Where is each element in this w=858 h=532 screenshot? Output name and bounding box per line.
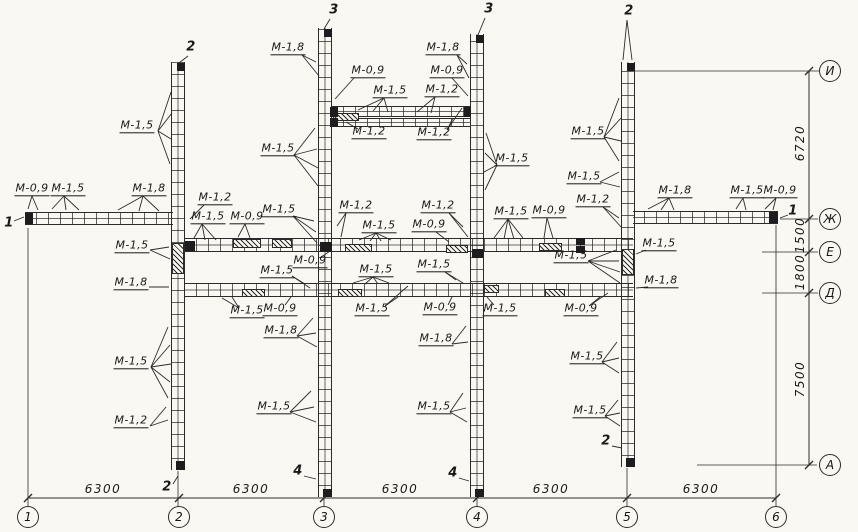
leader-line — [780, 215, 788, 218]
leader-line — [459, 478, 469, 481]
axis-marker-right: Ж — [819, 208, 841, 230]
leader-line — [245, 224, 250, 238]
solid-pier — [576, 238, 585, 245]
dimension-text: 6300 — [382, 482, 419, 496]
leader-line — [302, 55, 319, 76]
wall-segment — [470, 34, 484, 497]
hatched-wall-section — [345, 244, 372, 252]
dimension-text: 6300 — [533, 482, 570, 496]
leader-line — [547, 218, 553, 238]
leader-line — [452, 342, 468, 344]
wall-segment — [633, 211, 778, 224]
leader-line — [52, 196, 64, 209]
leader-line — [151, 345, 170, 367]
mortar-grade-label: M-1,5 — [359, 263, 394, 277]
leader-line — [304, 476, 316, 479]
solid-pier — [176, 461, 185, 470]
mortar-grade-label: M-1,5 — [262, 203, 297, 217]
mortar-grade-label: M-0,9 — [15, 182, 50, 196]
solid-pier — [185, 241, 195, 251]
section-mark-label: 1 — [4, 217, 13, 229]
solid-pier — [320, 242, 332, 252]
solid-pier — [627, 63, 635, 71]
mortar-grade-label: M-1,5 — [257, 400, 292, 414]
mortar-grade-label: M-1,8 — [114, 276, 149, 290]
leader-line — [194, 224, 202, 238]
leader-line — [450, 412, 467, 422]
leader-line — [158, 131, 170, 164]
leader-line — [669, 198, 674, 210]
dimension-text: 1800 — [793, 254, 807, 291]
leader-line — [600, 172, 619, 182]
axis-marker-bottom: 1 — [17, 506, 39, 528]
solid-pier — [25, 213, 33, 224]
mortar-grade-label: M-1,5 — [554, 249, 589, 263]
leader-line — [290, 412, 316, 422]
mortar-grade-label: M-1,5 — [230, 304, 265, 318]
mortar-grade-label: M-1,2 — [417, 126, 452, 140]
solid-pier — [330, 107, 338, 117]
leader-line — [32, 196, 38, 210]
leader-line — [14, 217, 24, 221]
leader-line — [158, 131, 171, 139]
mortar-grade-label: M-0,9 — [532, 204, 567, 218]
section-mark-label: 3 — [484, 3, 493, 15]
leader-line — [604, 98, 619, 137]
mortar-grade-label: M-1,8 — [644, 274, 679, 288]
leader-line — [173, 476, 178, 484]
solid-pier — [472, 249, 483, 258]
leader-line — [151, 367, 170, 382]
hatched-wall-section — [446, 245, 468, 253]
axis-marker-bottom: 5 — [616, 506, 638, 528]
hatched-wall-section — [545, 289, 565, 297]
mortar-grade-label: M-1,5 — [417, 258, 452, 272]
hatched-wall-section — [338, 289, 362, 297]
solid-pier — [330, 118, 338, 127]
leader-line — [452, 326, 466, 344]
solid-pier — [475, 489, 484, 497]
mortar-grade-label: M-1,5 — [362, 219, 397, 233]
dimension-text: 1500 — [793, 217, 807, 254]
solid-pier — [626, 458, 635, 467]
hatched-wall-section — [242, 289, 265, 297]
mortar-grade-label: M-1,5 — [571, 125, 606, 139]
solid-pier — [464, 107, 471, 117]
leader-line — [290, 407, 314, 412]
leader-line — [603, 207, 622, 228]
hatched-wall-section — [172, 243, 184, 274]
leader-line — [297, 318, 313, 336]
mortar-grade-label: M-1,5 — [417, 400, 452, 414]
hatched-wall-section — [484, 285, 499, 293]
leader-line — [290, 391, 311, 412]
mortar-grade-label: M-1,5 — [51, 182, 86, 196]
mortar-grade-label: M-1,5 — [191, 210, 226, 224]
axis-marker-bottom: 4 — [466, 506, 488, 528]
mortar-grade-label: M-1,2 — [352, 125, 387, 139]
leader-line — [151, 364, 171, 367]
mortar-grade-label: M-0,9 — [763, 184, 798, 198]
axis-marker-right: И — [819, 60, 841, 82]
leader-line — [297, 336, 317, 347]
leader-line — [736, 198, 743, 209]
mortar-grade-label: M-1,2 — [576, 193, 611, 207]
hatched-wall-section — [272, 239, 292, 248]
leader-line — [150, 250, 170, 259]
section-mark-label: 4 — [448, 467, 457, 479]
section-mark-label: 2 — [186, 41, 195, 53]
leader-line — [602, 362, 619, 373]
leader-line — [604, 118, 621, 137]
mortar-grade-label: M-0,9 — [423, 301, 458, 315]
mortar-grade-label: M-1,2 — [421, 199, 456, 213]
hatched-wall-section — [622, 249, 634, 275]
leader-line — [449, 213, 468, 237]
mortar-grade-label: M-1,5 — [114, 355, 149, 369]
mortar-grade-label: M-1,8 — [419, 332, 454, 346]
axis-marker-bottom: 2 — [168, 506, 190, 528]
mortar-grade-label: M-1,2 — [114, 414, 149, 428]
mortar-grade-label: M-1,8 — [264, 324, 299, 338]
mortar-grade-label: M-0,9 — [230, 210, 265, 224]
mortar-grade-label: M-1,2 — [198, 191, 233, 205]
mortar-grade-label: M-1,5 — [494, 205, 529, 219]
section-mark-label: 1 — [788, 205, 797, 217]
mortar-grade-label: M-1,5 — [260, 264, 295, 278]
leader-line — [335, 78, 354, 99]
axis-marker-right: Е — [819, 241, 841, 263]
axis-marker-right: Д — [819, 282, 841, 304]
leader-line — [28, 196, 32, 209]
leader-line — [294, 155, 318, 168]
section-mark-label: 2 — [601, 435, 610, 447]
section-mark-label: 3 — [329, 4, 338, 16]
mortar-grade-label: M-0,9 — [351, 64, 386, 78]
dimension-text: 7500 — [793, 361, 807, 398]
mortar-grade-label: M-1,5 — [730, 184, 765, 198]
mortar-grade-label: M-1,5 — [373, 84, 408, 98]
leader-line — [508, 219, 514, 239]
mortar-grade-label: M-1,5 — [261, 142, 296, 156]
wall-segment — [25, 212, 173, 225]
leader-line — [294, 128, 315, 155]
solid-pier — [324, 29, 332, 37]
leader-line — [150, 247, 169, 250]
mortar-grade-label: M-0,9 — [564, 302, 599, 316]
dimension-text: 6720 — [793, 125, 807, 162]
leader-line — [158, 92, 171, 131]
mortar-grade-label: M-1,5 — [120, 119, 155, 133]
leader-line — [158, 113, 172, 131]
solid-pier — [769, 212, 778, 223]
section-mark-label: 2 — [624, 5, 633, 17]
mortar-grade-label: M-1,8 — [426, 41, 461, 55]
leader-line — [294, 155, 318, 186]
leader-line — [588, 261, 620, 283]
leader-line — [604, 137, 619, 161]
section-mark-label: 4 — [293, 465, 302, 477]
leader-line — [118, 196, 143, 210]
mortar-grade-label: M-1,5 — [355, 302, 390, 316]
leader-line — [588, 261, 620, 272]
leader-line — [508, 219, 523, 238]
leader-line — [238, 224, 245, 237]
mortar-grade-label: M-1,8 — [132, 182, 167, 196]
leader-line — [445, 272, 463, 283]
section-mark-label: 2 — [162, 481, 171, 493]
leader-line — [743, 198, 746, 210]
mortar-grade-label: M-1,5 — [573, 404, 608, 418]
leader-line — [485, 165, 497, 190]
mortar-grade-label: M-1,5 — [567, 170, 602, 184]
dimension-text: 6300 — [683, 482, 720, 496]
mortar-grade-label: M-0,9 — [430, 64, 465, 78]
leader-line — [600, 182, 620, 187]
leader-line — [478, 18, 485, 35]
dimension-text: 6300 — [233, 482, 270, 496]
dimension-text: 6300 — [85, 482, 122, 496]
leader-line — [302, 55, 316, 62]
axis-marker-bottom: 6 — [765, 506, 787, 528]
leader-line — [627, 20, 632, 60]
axis-marker-right: А — [819, 454, 841, 476]
mortar-grade-label: M-1,2 — [425, 83, 460, 97]
hatched-wall-section — [233, 239, 261, 248]
leader-line — [64, 196, 79, 210]
mortar-grade-label: M-1,5 — [642, 237, 677, 251]
mortar-grade-label: M-1,5 — [115, 239, 150, 253]
solid-pier — [177, 63, 185, 71]
leader-line — [151, 327, 168, 367]
mortar-grade-label: M-0,9 — [263, 302, 298, 316]
mortar-grade-label: M-1,5 — [495, 152, 530, 166]
axis-marker-bottom: 3 — [313, 506, 335, 528]
mortar-grade-label: M-0,9 — [412, 218, 447, 232]
mortar-grade-label: M-1,8 — [658, 184, 693, 198]
mortar-grade-label: M-1,8 — [271, 41, 306, 55]
leader-line — [623, 20, 627, 60]
mortar-grade-label: M-1,5 — [483, 302, 518, 316]
solid-pier — [323, 489, 332, 497]
solid-pier — [476, 35, 484, 43]
leader-line — [151, 367, 168, 398]
leader-line — [143, 196, 159, 211]
mortar-grade-label: M-1,5 — [570, 350, 605, 364]
blueprint-sheet: 6300630063006300630067201500180075002332… — [0, 0, 858, 532]
mortar-grade-label: M-0,9 — [293, 254, 328, 268]
mortar-grade-label: M-1,2 — [339, 199, 374, 213]
leader-line — [544, 218, 547, 238]
